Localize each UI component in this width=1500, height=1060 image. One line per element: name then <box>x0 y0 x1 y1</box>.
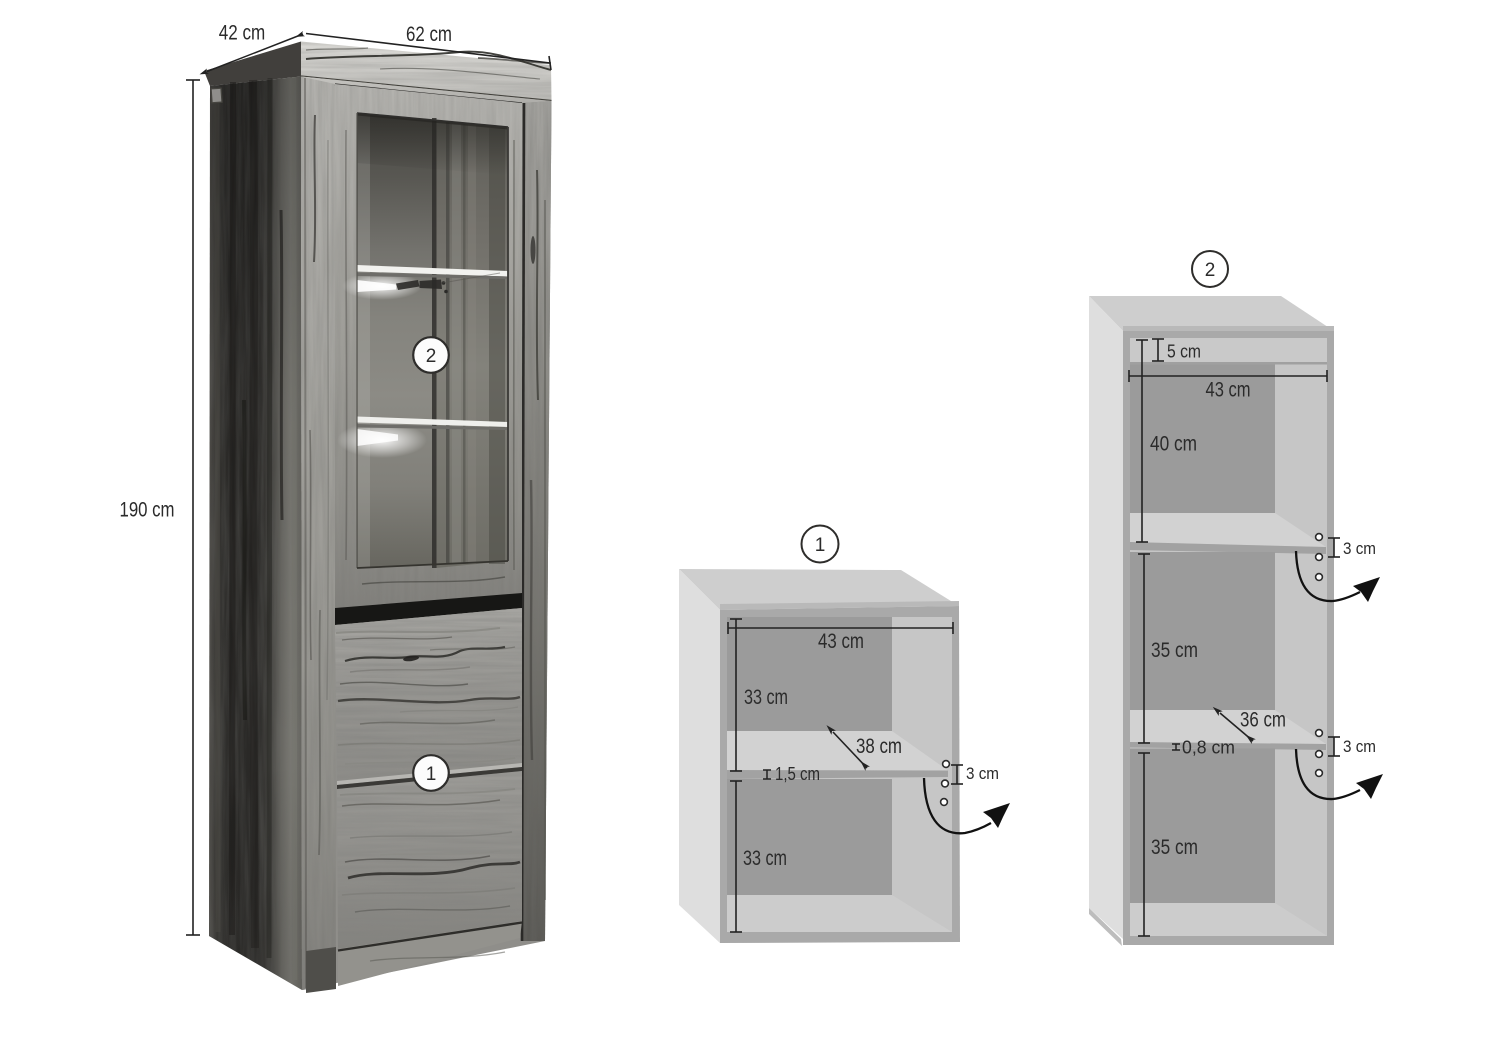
svg-text:0,8 cm: 0,8 cm <box>1182 738 1235 758</box>
svg-text:42 cm: 42 cm <box>219 22 266 45</box>
svg-text:38 cm: 38 cm <box>856 735 902 758</box>
svg-text:5 cm: 5 cm <box>1167 342 1201 362</box>
svg-text:2: 2 <box>426 346 437 367</box>
svg-text:190 cm: 190 cm <box>120 499 175 522</box>
svg-text:35 cm: 35 cm <box>1151 639 1198 662</box>
svg-text:2: 2 <box>1205 260 1216 281</box>
svg-text:3 cm: 3 cm <box>1343 539 1376 558</box>
svg-text:3 cm: 3 cm <box>966 764 999 783</box>
svg-text:43 cm: 43 cm <box>818 630 864 653</box>
svg-text:1: 1 <box>815 535 826 556</box>
svg-text:1,5 cm: 1,5 cm <box>775 764 820 784</box>
svg-text:62 cm: 62 cm <box>406 23 452 46</box>
svg-text:35 cm: 35 cm <box>1151 836 1198 859</box>
svg-text:36 cm: 36 cm <box>1240 709 1286 732</box>
svg-text:43 cm: 43 cm <box>1206 379 1251 402</box>
svg-text:3 cm: 3 cm <box>1343 737 1376 756</box>
svg-text:40 cm: 40 cm <box>1150 433 1197 456</box>
svg-text:33 cm: 33 cm <box>743 847 787 870</box>
svg-text:33 cm: 33 cm <box>744 686 788 709</box>
svg-text:1: 1 <box>426 764 437 785</box>
